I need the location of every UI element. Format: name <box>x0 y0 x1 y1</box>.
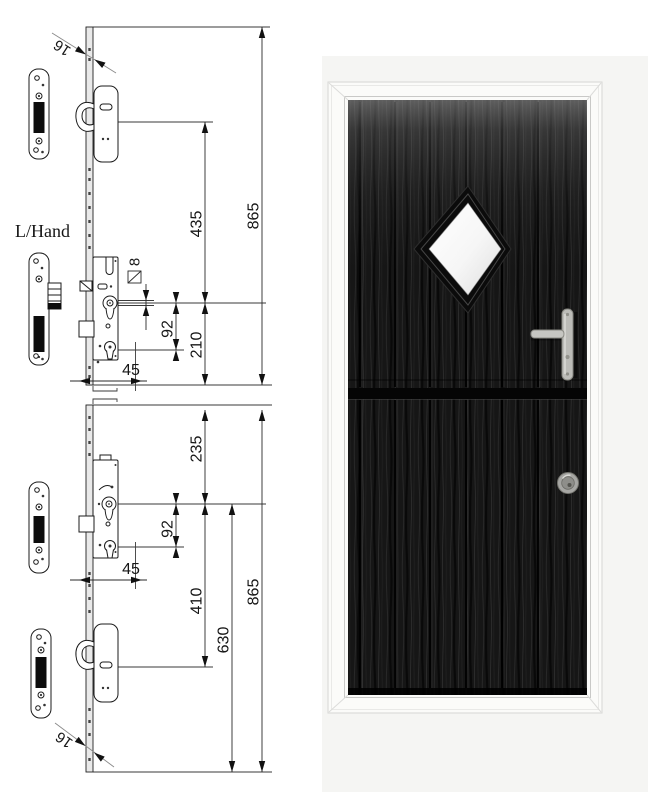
dim-16-bottom: 16 <box>53 728 76 751</box>
keyhole <box>565 355 569 359</box>
deadbolt-lower <box>79 516 94 532</box>
dim-92-upper: 92 <box>160 320 177 338</box>
keep-slot <box>36 657 47 688</box>
dim-210: 210 <box>189 332 206 359</box>
product-sheet: 16 435 865 8 92 210 45 235 92 45 410 630… <box>0 0 650 800</box>
keep-slot <box>34 316 45 352</box>
gearbox-lower <box>79 455 118 558</box>
keep-slot <box>34 102 45 133</box>
lock-and-door-graphic: 16 435 865 8 92 210 45 235 92 45 410 630… <box>0 0 650 800</box>
faceplate-lower <box>86 405 93 772</box>
dimension-labels: 16 435 865 8 92 210 45 235 92 45 410 630… <box>15 36 263 751</box>
keep-plate-lower-centre <box>29 482 49 573</box>
keep-plate-top <box>29 69 49 159</box>
dim-630: 630 <box>216 627 233 654</box>
dim-45-upper: 45 <box>122 362 140 379</box>
handle-backplate[interactable] <box>562 309 573 380</box>
dim-865-lower: 865 <box>246 579 263 606</box>
keep-plate-bottom <box>31 629 51 718</box>
keep-slot <box>34 516 45 543</box>
hook-lock-lower <box>76 624 118 702</box>
dim-8: 8 <box>127 258 144 266</box>
hook-lock-upper <box>76 86 118 162</box>
dim-45-lower: 45 <box>122 561 140 578</box>
hand-label: L/Hand <box>15 221 70 241</box>
keep-plate-centre <box>29 253 61 365</box>
deadbolt-upper <box>79 321 94 337</box>
dim-235: 235 <box>189 436 206 463</box>
handle-lever[interactable] <box>531 330 564 338</box>
dim-16-top: 16 <box>51 36 74 59</box>
dim-435: 435 <box>189 211 206 238</box>
door-photo <box>322 56 648 792</box>
dim-865-upper: 865 <box>246 203 263 230</box>
gearbox-upper <box>79 257 118 363</box>
dim-410: 410 <box>189 588 206 615</box>
lock-technical-diagram: 16 435 865 8 92 210 45 235 92 45 410 630… <box>15 27 272 772</box>
dim-92-lower: 92 <box>160 520 177 538</box>
door-knob[interactable] <box>558 473 579 494</box>
